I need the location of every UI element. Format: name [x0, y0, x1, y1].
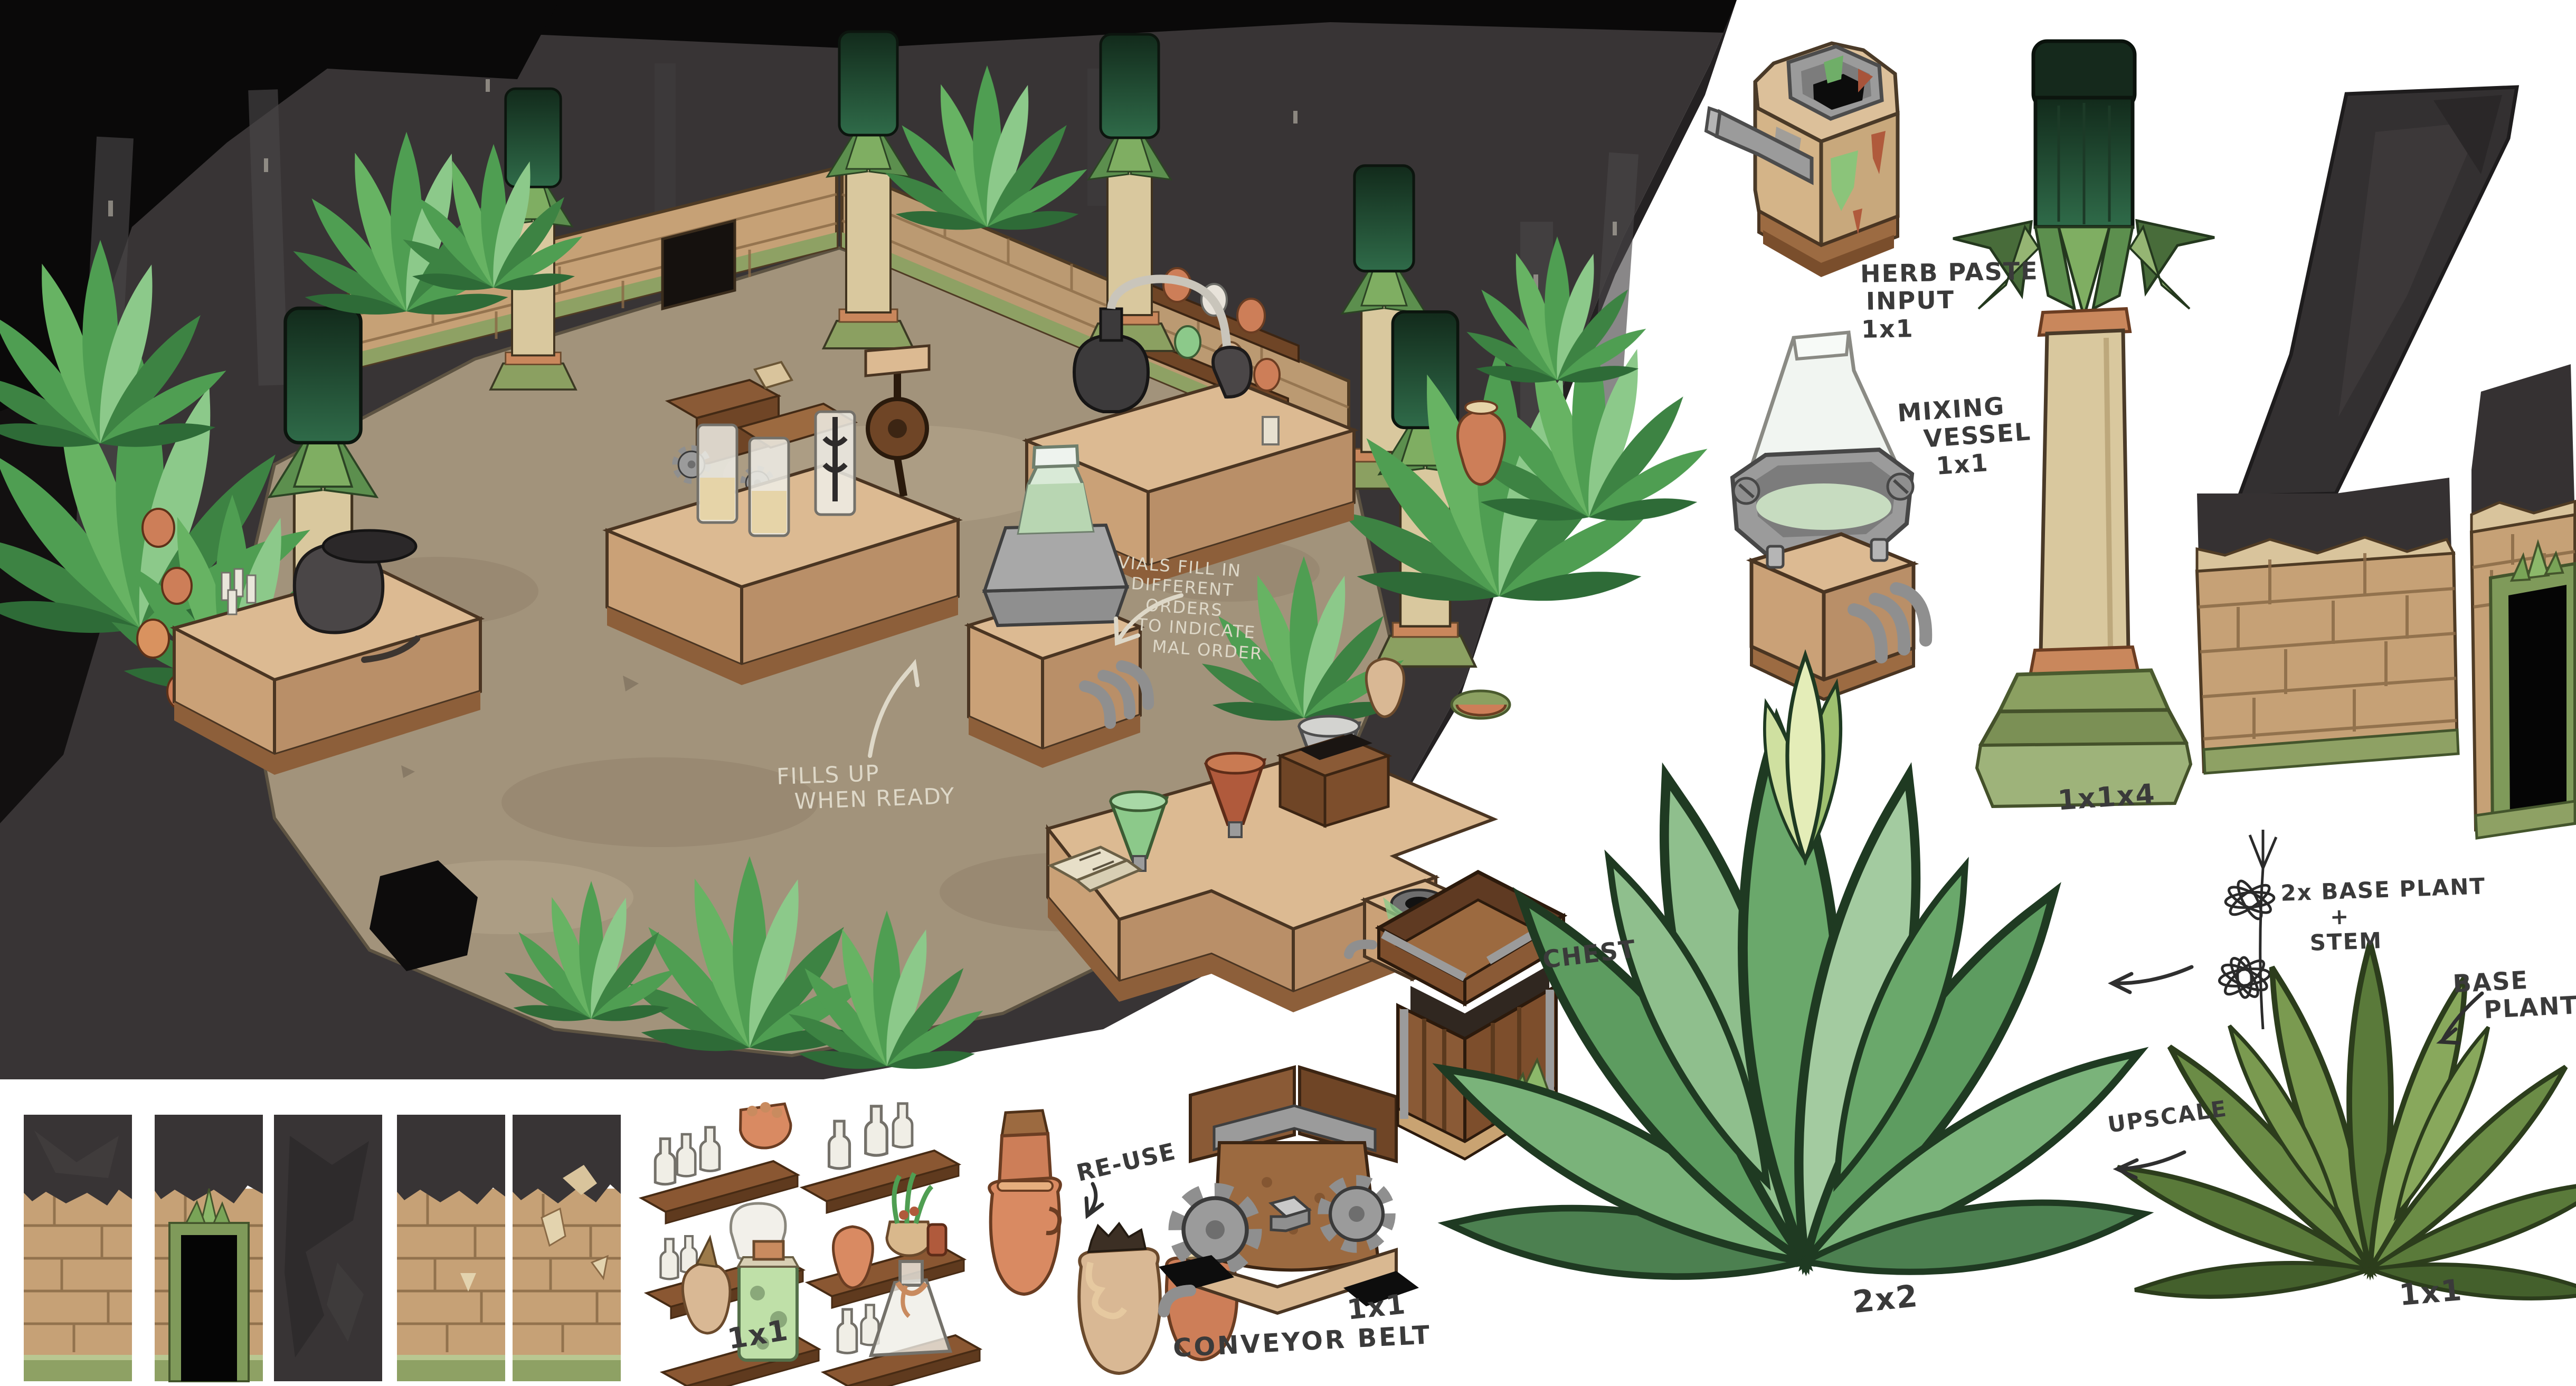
- mixing-vessel-asset: [1732, 333, 1926, 699]
- wall-tile-doorway: [155, 1115, 263, 1381]
- wall-door-asset: [2471, 364, 2575, 838]
- amphora: [989, 1110, 1060, 1294]
- plant-large-size-label: 2x2: [1851, 1278, 1920, 1320]
- herb-paste-label: HERB PASTE INPUT 1x1: [1860, 257, 2040, 343]
- herb-paste-input-asset: [1706, 43, 1898, 277]
- storage-pot-tan: [1079, 1223, 1160, 1373]
- rock-slab: [2239, 87, 2517, 496]
- wall-tile-plain: [397, 1115, 505, 1381]
- plant-sketch-label: 2x BASE PLANT + STEM: [2280, 874, 2488, 956]
- wall-tile-damaged: [513, 1115, 621, 1381]
- base-plant-size-label: 1x1: [2398, 1274, 2464, 1313]
- wall-tileset: [24, 1115, 621, 1381]
- base-plant-label: BASE PLANT: [2452, 964, 2576, 1026]
- concept-sheet: HERB PASTE INPUT 1x1 MIXING VESSEL 1x1 1…: [0, 0, 2576, 1386]
- wall-tile-rock: [274, 1115, 382, 1381]
- wall-brick-piece: [2197, 478, 2458, 773]
- artwork: [0, 0, 2576, 1386]
- conveyor-size-label: 1x1: [1346, 1289, 1407, 1326]
- shelf-stack-right: [802, 1104, 980, 1386]
- wall-tile-plain: [24, 1115, 132, 1381]
- plant-sketch: [2218, 830, 2276, 1029]
- mixing-vessel-label: MIXING VESSEL 1x1: [1897, 390, 2034, 482]
- conveyor-belt-asset: [1159, 1067, 1419, 1313]
- fills-up-note: FILLS UP WHEN READY: [776, 758, 955, 814]
- vials-note: VIALS FILL IN DIFFERENT ORDERS TO INDICA…: [1112, 552, 1270, 663]
